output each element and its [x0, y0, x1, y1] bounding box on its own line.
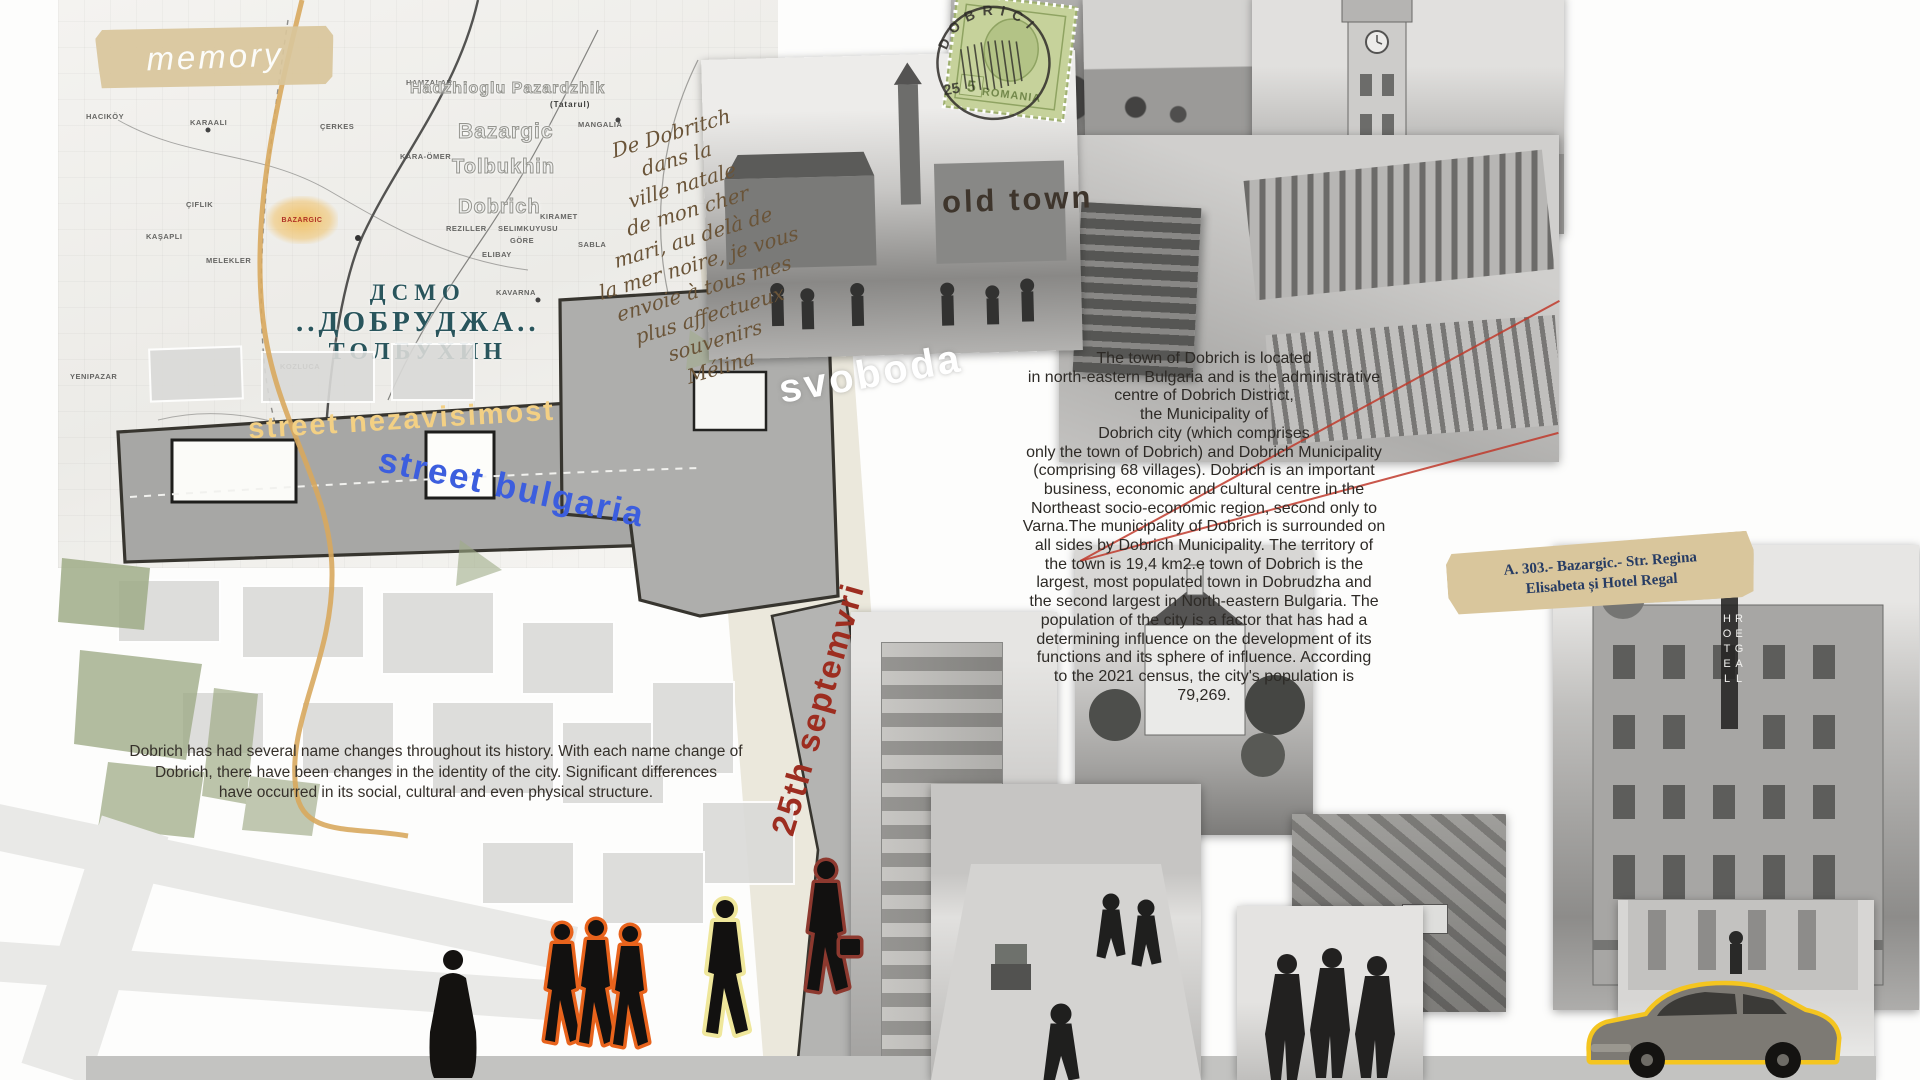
boulevard-drawing	[931, 784, 1201, 1080]
postage-stamp: 5 ROMANIA DOBRICI 25	[918, 0, 1100, 152]
photo-boulevard-people	[931, 784, 1201, 1080]
photo-town-square-fountain: Шадравана	[1083, 0, 1256, 155]
silhouette-man-yellow-outline	[684, 892, 766, 1048]
memory-tape: memory	[95, 22, 335, 92]
photo-group-of-men	[1237, 906, 1423, 1080]
silhouette-group-orange-outline	[540, 910, 658, 1080]
about-dobrich-text: The town of Dobrich is located in north-…	[1008, 350, 1400, 705]
postmark-number: 25	[942, 80, 961, 100]
silhouette-man-red-outline	[782, 855, 870, 1007]
apartment-rows	[1244, 150, 1555, 301]
memory-label: memory	[146, 36, 284, 79]
old-car-yellow-outline	[1585, 970, 1847, 1080]
name-changes-text: Dobrich has had several name changes thr…	[116, 742, 756, 804]
ticket-label: A. 303.- Bazargic.- Str. Regina Elisabet…	[1503, 547, 1699, 601]
poster-canvas: Kavarna Kozluca Mangalia Sabla Yenipazar…	[0, 0, 1920, 1080]
silhouette-woman	[420, 948, 486, 1080]
old-town-label: old town	[941, 179, 1094, 220]
men-group-drawing	[1237, 906, 1423, 1080]
